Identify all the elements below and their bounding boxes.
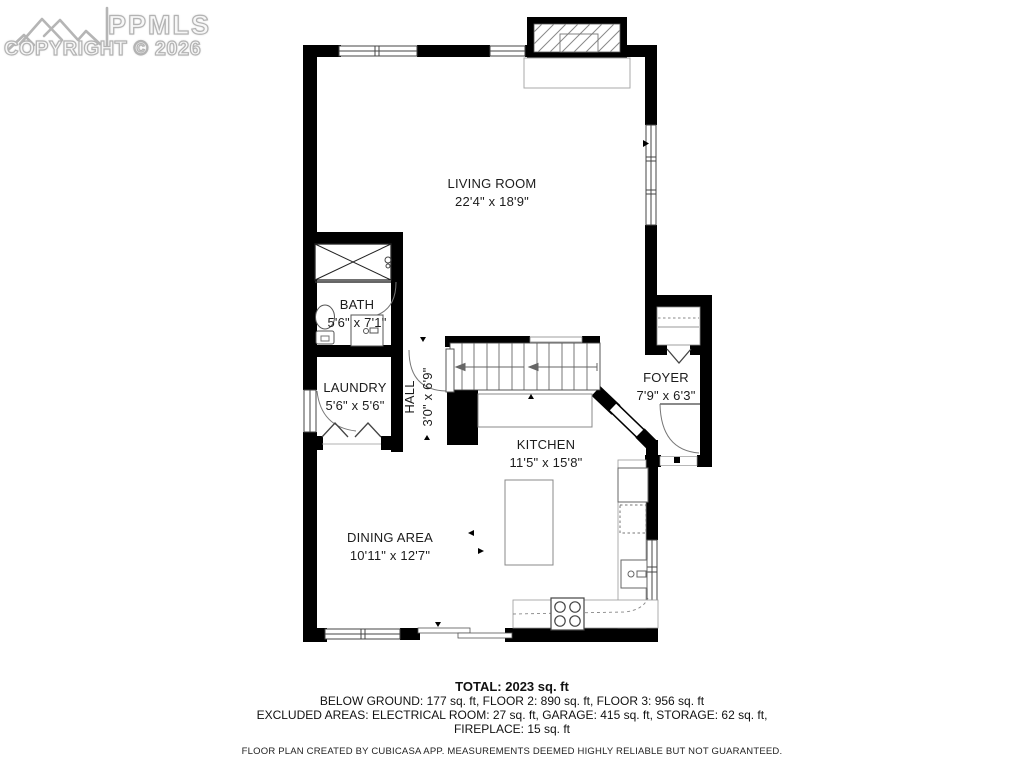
copyright-text: COPYRIGHT © 2026 <box>4 38 201 61</box>
hearth <box>524 58 630 88</box>
fireplace-area-line: FIREPLACE: 15 sq. ft <box>0 723 1024 736</box>
watermark: PPMLS COPYRIGHT © 2026 <box>4 2 224 72</box>
room-dims: 11'5" x 15'8" <box>510 454 583 472</box>
room-dims: 3'0" x 6'9" <box>419 367 437 426</box>
ppmls-logo-text: PPMLS <box>108 10 211 41</box>
area-summary: TOTAL: 2023 sq. ft BELOW GROUND: 177 sq.… <box>0 680 1024 757</box>
room-dims: 5'6" x 7'1" <box>327 314 386 332</box>
bifold-door <box>667 349 691 363</box>
room-name: LIVING ROOM <box>448 175 537 193</box>
room-dims: 5'6" x 5'6" <box>323 397 386 415</box>
kitchen-fixtures <box>505 460 658 630</box>
room-name: LAUNDRY <box>323 379 386 397</box>
room-label-living-room: LIVING ROOM 22'4" x 18'9" <box>448 175 537 211</box>
sink-icon <box>621 560 647 588</box>
floor-plan-page: PPMLS COPYRIGHT © 2026 LIVING ROOM 22'4"… <box>0 0 1024 767</box>
room-label-hall: HALL 3'0" x 6'9" <box>401 367 437 426</box>
room-label-laundry: LAUNDRY 5'6" x 5'6" <box>323 379 386 415</box>
room-dims: 7'9" x 6'3" <box>636 387 695 405</box>
bifold-door <box>355 423 381 437</box>
room-label-foyer: FOYER 7'9" x 6'3" <box>636 369 695 405</box>
room-name: BATH <box>327 296 386 314</box>
room-name: DINING AREA <box>347 529 433 547</box>
stove-icon <box>551 598 584 630</box>
fireplace-icon <box>510 17 642 88</box>
room-dims: 10'11" x 12'7" <box>347 547 433 565</box>
kitchen-island <box>505 480 553 565</box>
kitchen-counter-under-stairs <box>478 394 592 427</box>
floors-area-line: BELOW GROUND: 177 sq. ft, FLOOR 2: 890 s… <box>0 695 1024 708</box>
room-label-dining-area: DINING AREA 10'11" x 12'7" <box>347 529 433 565</box>
room-name: HALL <box>401 367 419 426</box>
disclaimer-text: FLOOR PLAN CREATED BY CUBICASA APP. MEAS… <box>0 746 1024 757</box>
room-name: KITCHEN <box>510 436 583 454</box>
total-area: TOTAL: 2023 sq. ft <box>0 680 1024 694</box>
room-label-kitchen: KITCHEN 11'5" x 15'8" <box>510 436 583 472</box>
room-label-bath: BATH 5'6" x 7'1" <box>327 296 386 332</box>
bifold-door <box>322 423 348 437</box>
kitchen-counter-south <box>513 600 658 628</box>
door-leaf <box>446 349 454 392</box>
fridge-icon <box>618 468 648 502</box>
excluded-areas-line: EXCLUDED AREAS: ELECTRICAL ROOM: 27 sq. … <box>0 709 1024 722</box>
room-name: FOYER <box>636 369 695 387</box>
room-dims: 22'4" x 18'9" <box>448 193 537 211</box>
stairs-icon <box>450 337 600 390</box>
door-swing-arc <box>660 404 699 453</box>
sliding-door <box>418 628 512 638</box>
closet-x-icon <box>315 244 391 280</box>
entry-door <box>660 404 700 466</box>
floor-plan-drawing <box>0 0 1024 767</box>
